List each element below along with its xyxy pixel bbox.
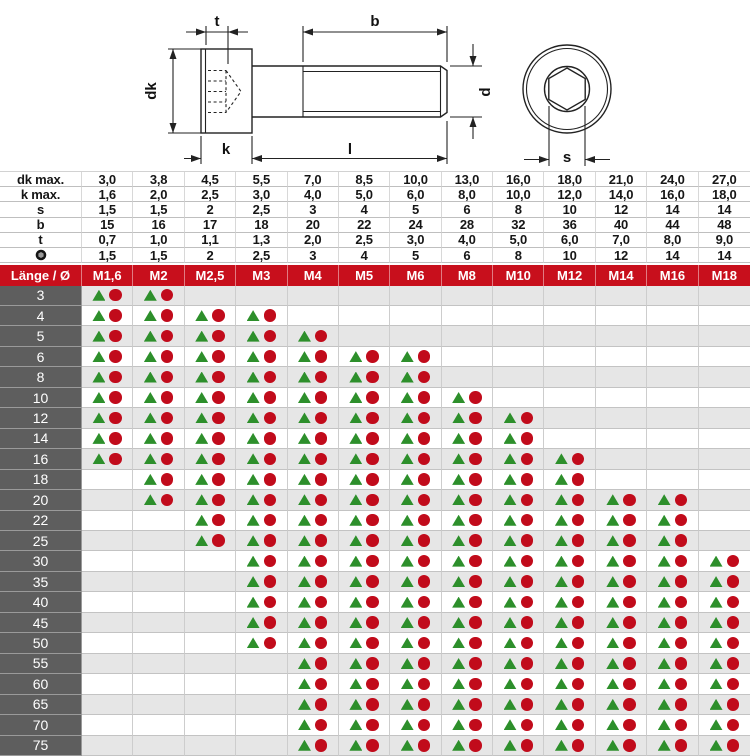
circle-icon [315, 616, 328, 629]
circle-icon [418, 739, 431, 752]
availability-cell [339, 429, 390, 449]
circle-icon [264, 412, 277, 425]
circle-icon [469, 657, 482, 670]
spec-value: 7,0 [288, 172, 339, 187]
availability-cell [647, 408, 698, 428]
availability-cell [596, 388, 647, 408]
screw-end-view: s [523, 45, 611, 166]
triangle-icon [452, 576, 465, 587]
triangle-icon [401, 658, 414, 669]
circle-icon [212, 309, 225, 322]
triangle-icon [710, 637, 723, 648]
availability-cell [442, 654, 493, 674]
availability-cell [133, 654, 184, 674]
availability-cell [699, 511, 750, 531]
circle-icon [469, 637, 482, 650]
length-label: 6 [0, 347, 82, 367]
triangle-icon [658, 556, 671, 567]
availability-cell [544, 347, 595, 367]
triangle-icon [555, 719, 568, 730]
circle-icon [521, 494, 534, 507]
circle-icon [623, 514, 636, 527]
availability-cell [339, 695, 390, 715]
circle-icon [264, 453, 277, 466]
triangle-icon [504, 740, 517, 751]
triangle-icon [710, 658, 723, 669]
circle-icon [521, 575, 534, 588]
availability-cell [133, 490, 184, 510]
availability-cell [596, 572, 647, 592]
circle-icon [469, 514, 482, 527]
availability-cell [544, 286, 595, 306]
circle-icon [572, 637, 585, 650]
availability-cell [185, 695, 236, 715]
availability-cell [236, 326, 287, 346]
circle-icon [521, 555, 534, 568]
circle-icon [469, 453, 482, 466]
availability-cell [442, 511, 493, 531]
triangle-icon [606, 535, 619, 546]
triangle-icon [349, 351, 362, 362]
triangle-icon [452, 412, 465, 423]
availability-cell [288, 470, 339, 490]
availability-cell [544, 429, 595, 449]
triangle-icon [452, 433, 465, 444]
circle-icon [366, 473, 379, 486]
circle-icon [264, 596, 277, 609]
triangle-icon [247, 412, 260, 423]
availability-cell [390, 429, 441, 449]
circle-icon [315, 575, 328, 588]
triangle-icon [144, 474, 157, 485]
availability-cell [442, 572, 493, 592]
availability-cell [544, 511, 595, 531]
triangle-icon [452, 515, 465, 526]
availability-cell [82, 674, 133, 694]
spec-value: 7,0 [596, 233, 647, 248]
availability-cell [288, 326, 339, 346]
availability-cell [493, 449, 544, 469]
availability-cell [544, 633, 595, 653]
spec-value: 18,0 [699, 187, 750, 202]
availability-cell [442, 613, 493, 633]
spec-row-label: dk max. [0, 172, 82, 187]
circle-icon [469, 575, 482, 588]
triangle-icon [247, 597, 260, 608]
triangle-icon [452, 699, 465, 710]
availability-cell [390, 511, 441, 531]
circle-icon [212, 453, 225, 466]
circle-icon [727, 555, 740, 568]
availability-cell [596, 306, 647, 326]
spec-value: 24,0 [647, 172, 698, 187]
availability-cell [185, 674, 236, 694]
availability-cell [596, 592, 647, 612]
circle-icon [418, 350, 431, 363]
circle-icon [727, 698, 740, 711]
availability-cell [133, 551, 184, 571]
circle-icon [572, 678, 585, 691]
availability-cell [82, 449, 133, 469]
availability-cell [493, 736, 544, 756]
triangle-icon [401, 699, 414, 710]
spec-value: 5 [390, 202, 441, 217]
availability-cell [288, 613, 339, 633]
availability-cell [390, 613, 441, 633]
triangle-icon [452, 474, 465, 485]
spec-value: 8,0 [647, 233, 698, 248]
availability-cell [185, 367, 236, 387]
circle-icon [727, 657, 740, 670]
availability-cell [544, 449, 595, 469]
column-header: M3 [236, 265, 287, 286]
availability-cell [596, 286, 647, 306]
circle-icon [109, 330, 122, 343]
circle-icon [675, 596, 688, 609]
hex-socket-icon [35, 249, 47, 261]
triangle-icon [195, 331, 208, 342]
length-label: 50 [0, 633, 82, 653]
triangle-icon [710, 617, 723, 628]
availability-cell [442, 736, 493, 756]
availability-cell [82, 572, 133, 592]
circle-icon [521, 719, 534, 732]
availability-cell [442, 367, 493, 387]
availability-cell [339, 592, 390, 612]
circle-icon [469, 494, 482, 507]
spec-value: 0,7 [82, 233, 133, 248]
availability-cell [133, 306, 184, 326]
availability-cell [647, 551, 698, 571]
availability-cell [288, 695, 339, 715]
triangle-icon [195, 474, 208, 485]
availability-cell [647, 367, 698, 387]
spec-value: 2,5 [185, 187, 236, 202]
spec-value: 10,0 [493, 187, 544, 202]
triangle-icon [555, 678, 568, 689]
triangle-icon [195, 351, 208, 362]
circle-icon [572, 453, 585, 466]
circle-icon [572, 534, 585, 547]
circle-icon [366, 534, 379, 547]
availability-cell [133, 286, 184, 306]
triangle-icon [349, 678, 362, 689]
availability-cell [647, 388, 698, 408]
column-header: M16 [647, 265, 698, 286]
circle-icon [727, 575, 740, 588]
triangle-icon [606, 678, 619, 689]
availability-cell [288, 347, 339, 367]
availability-cell [236, 633, 287, 653]
circle-icon [521, 657, 534, 670]
triangle-icon [247, 617, 260, 628]
socket-hidden-lines [208, 71, 241, 113]
triangle-icon [555, 453, 568, 464]
triangle-icon [298, 740, 311, 751]
circle-icon [521, 514, 534, 527]
column-header: M2 [133, 265, 184, 286]
availability-cell [82, 429, 133, 449]
availability-cell [339, 408, 390, 428]
triangle-icon [504, 699, 517, 710]
spec-value: 3,8 [133, 172, 184, 187]
triangle-icon [92, 412, 105, 423]
spec-value: 27,0 [699, 172, 750, 187]
circle-icon [675, 494, 688, 507]
spec-value: 14 [647, 248, 698, 263]
triangle-icon [504, 494, 517, 505]
availability-cell [544, 470, 595, 490]
triangle-icon [504, 597, 517, 608]
triangle-icon [401, 740, 414, 751]
availability-cell [544, 531, 595, 551]
spec-value: 18 [236, 218, 287, 233]
availability-cell [647, 736, 698, 756]
triangle-icon [555, 617, 568, 628]
column-header: M10 [493, 265, 544, 286]
availability-cell [596, 449, 647, 469]
circle-icon [315, 678, 328, 691]
availability-cell [596, 511, 647, 531]
spec-value: 44 [647, 218, 698, 233]
triangle-icon [247, 351, 260, 362]
circle-icon [366, 494, 379, 507]
spec-value: 4 [339, 248, 390, 263]
availability-cell [699, 470, 750, 490]
spec-value: 1,5 [82, 248, 133, 263]
circle-icon [623, 596, 636, 609]
availability-cell [493, 674, 544, 694]
triangle-icon [298, 494, 311, 505]
triangle-icon [247, 474, 260, 485]
triangle-icon [195, 392, 208, 403]
availability-cell [288, 408, 339, 428]
circle-icon [264, 616, 277, 629]
circle-icon [623, 637, 636, 650]
triangle-icon [195, 433, 208, 444]
availability-cell [596, 490, 647, 510]
circle-icon [315, 350, 328, 363]
availability-cell [339, 306, 390, 326]
triangle-icon [504, 412, 517, 423]
circle-icon [469, 534, 482, 547]
triangle-icon [504, 658, 517, 669]
circle-icon [109, 432, 122, 445]
triangle-icon [195, 372, 208, 383]
circle-icon [469, 719, 482, 732]
circle-icon [264, 534, 277, 547]
availability-cell [288, 531, 339, 551]
availability-cell [493, 592, 544, 612]
circle-icon [315, 637, 328, 650]
triangle-icon [298, 474, 311, 485]
availability-cell [339, 551, 390, 571]
triangle-icon [298, 576, 311, 587]
circle-icon [572, 473, 585, 486]
circle-icon [264, 514, 277, 527]
availability-cell [236, 695, 287, 715]
availability-cell [288, 388, 339, 408]
circle-icon [161, 453, 174, 466]
availability-cell [596, 326, 647, 346]
triangle-icon [606, 699, 619, 710]
triangle-icon [298, 637, 311, 648]
spec-value: 10 [544, 248, 595, 263]
triangle-icon [247, 576, 260, 587]
availability-cell [493, 490, 544, 510]
circle-icon [675, 719, 688, 732]
availability-cell [544, 613, 595, 633]
availability-cell [390, 633, 441, 653]
triangle-icon [606, 515, 619, 526]
availability-cell [236, 613, 287, 633]
spec-row-label [0, 248, 82, 263]
circle-icon [315, 473, 328, 486]
spec-value: 1,0 [133, 233, 184, 248]
circle-icon [366, 514, 379, 527]
availability-cell [493, 715, 544, 735]
availability-cell [699, 306, 750, 326]
triangle-icon [247, 535, 260, 546]
spec-value: 5 [390, 248, 441, 263]
triangle-icon [298, 392, 311, 403]
circle-icon [469, 616, 482, 629]
availability-cell [133, 511, 184, 531]
availability-cell [544, 306, 595, 326]
availability-cell [133, 388, 184, 408]
availability-cell [647, 429, 698, 449]
triangle-icon [298, 351, 311, 362]
triangle-icon [401, 637, 414, 648]
triangle-icon [298, 433, 311, 444]
triangle-icon [195, 515, 208, 526]
circle-icon [521, 739, 534, 752]
availability-cell [596, 367, 647, 387]
availability-cell [133, 715, 184, 735]
circle-icon [727, 678, 740, 691]
circle-icon [623, 534, 636, 547]
availability-cell [185, 592, 236, 612]
triangle-icon [658, 515, 671, 526]
circle-icon [572, 596, 585, 609]
dim-label-k: k [222, 141, 231, 158]
circle-icon [623, 719, 636, 732]
circle-icon [727, 739, 740, 752]
availability-cell [596, 429, 647, 449]
circle-icon [109, 412, 122, 425]
triangle-icon [555, 740, 568, 751]
circle-icon [212, 330, 225, 343]
availability-cell [133, 674, 184, 694]
availability-cell [699, 347, 750, 367]
availability-cell [236, 408, 287, 428]
spec-value: 28 [442, 218, 493, 233]
triangle-icon [298, 658, 311, 669]
availability-cell [699, 551, 750, 571]
triangle-icon [298, 331, 311, 342]
triangle-icon [452, 597, 465, 608]
hex-socket-outline [549, 68, 585, 110]
availability-cell [236, 449, 287, 469]
circle-icon [727, 637, 740, 650]
triangle-icon [658, 535, 671, 546]
triangle-icon [555, 515, 568, 526]
circle-icon [264, 371, 277, 384]
circle-icon [675, 575, 688, 588]
spec-value: 5,0 [339, 187, 390, 202]
spec-value: 3,0 [390, 233, 441, 248]
availability-cell [339, 511, 390, 531]
triangle-icon [555, 699, 568, 710]
spec-value: 2,0 [288, 233, 339, 248]
triangle-icon [298, 597, 311, 608]
triangle-icon [452, 392, 465, 403]
triangle-icon [195, 412, 208, 423]
triangle-icon [504, 515, 517, 526]
circle-icon [418, 637, 431, 650]
circle-icon [675, 637, 688, 650]
triangle-icon [606, 658, 619, 669]
triangle-icon [92, 290, 105, 301]
availability-cell [647, 286, 698, 306]
triangle-icon [658, 637, 671, 648]
availability-cell [647, 306, 698, 326]
availability-cell [699, 572, 750, 592]
circle-icon [469, 739, 482, 752]
circle-icon [521, 432, 534, 445]
circle-icon [315, 391, 328, 404]
availability-cell [699, 490, 750, 510]
triangle-icon [606, 637, 619, 648]
triangle-icon [452, 678, 465, 689]
circle-icon [212, 371, 225, 384]
availability-cell [133, 531, 184, 551]
availability-cell [288, 572, 339, 592]
circle-icon [315, 596, 328, 609]
circle-icon [161, 309, 174, 322]
circle-icon [212, 350, 225, 363]
triangle-icon [247, 433, 260, 444]
availability-cell [493, 470, 544, 490]
column-header: M18 [699, 265, 750, 286]
spec-value: 1,6 [82, 187, 133, 202]
availability-cell [596, 613, 647, 633]
circle-icon [572, 719, 585, 732]
length-label: 10 [0, 388, 82, 408]
circle-icon [109, 309, 122, 322]
triangle-icon [658, 740, 671, 751]
circle-icon [727, 616, 740, 629]
circle-icon [366, 391, 379, 404]
triangle-icon [606, 576, 619, 587]
circle-icon [366, 555, 379, 568]
circle-icon [572, 575, 585, 588]
availability-cell [133, 470, 184, 490]
circle-icon [366, 432, 379, 445]
availability-cell [133, 367, 184, 387]
availability-cell [82, 347, 133, 367]
availability-cell [185, 551, 236, 571]
circle-icon [418, 657, 431, 670]
availability-cell [185, 531, 236, 551]
circle-icon [418, 453, 431, 466]
circle-icon [623, 739, 636, 752]
triangle-icon [349, 597, 362, 608]
triangle-icon [452, 494, 465, 505]
circle-icon [521, 678, 534, 691]
spec-value: 9,0 [699, 233, 750, 248]
spec-sheet-page: t b dk k l [0, 0, 750, 756]
